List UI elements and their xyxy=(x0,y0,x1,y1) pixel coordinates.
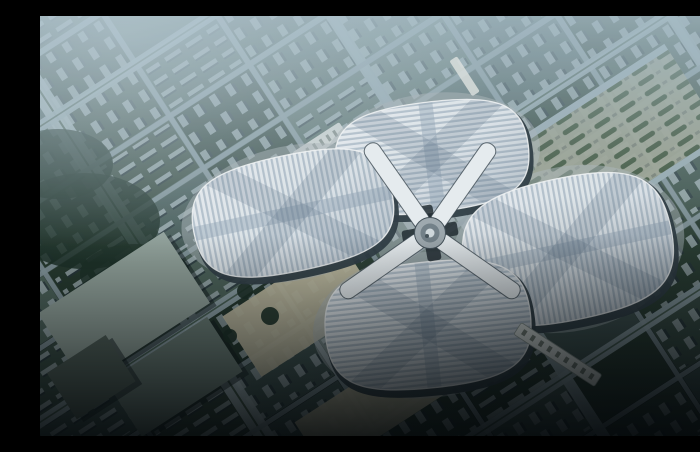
scene-svg xyxy=(40,16,700,436)
aerial-rendering xyxy=(40,16,700,436)
vignette-overlay xyxy=(40,16,700,436)
